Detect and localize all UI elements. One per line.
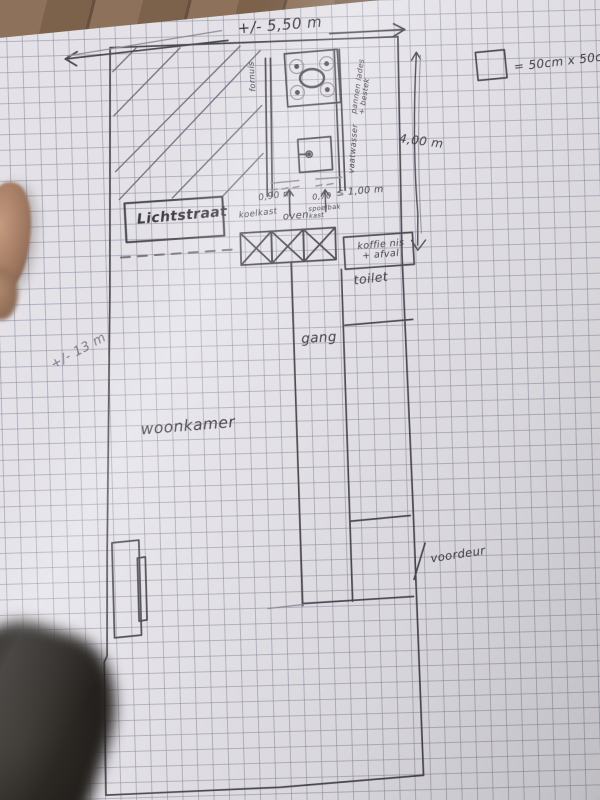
counter-x-boxes	[240, 228, 336, 266]
niche-width-dimension-label: 0,70	[312, 192, 332, 203]
toilet-divider	[345, 319, 413, 325]
right-dimension-arrow	[406, 52, 426, 250]
photo-stage: +/- 5,50 m = 50cm x 50cm 4,00 m +/- 13 m…	[0, 0, 600, 800]
hallway-walls	[258, 260, 414, 609]
sink-cupboard-label: spoelbak kast	[308, 204, 341, 221]
top-dimension-arrow	[65, 23, 406, 65]
sink-icon	[298, 137, 333, 173]
stove-icon	[284, 49, 341, 107]
oven-label: oven	[282, 210, 309, 223]
hatched-area	[112, 45, 264, 200]
wall-cupboard	[112, 540, 148, 638]
coffee-nook-label: koffie nis + afval	[357, 238, 406, 263]
counter-dashes	[271, 177, 342, 190]
stove-label: fornuis	[247, 61, 258, 92]
legend-square	[475, 50, 507, 81]
dashed-line	[121, 249, 238, 257]
hallway-label: gang	[301, 330, 337, 347]
